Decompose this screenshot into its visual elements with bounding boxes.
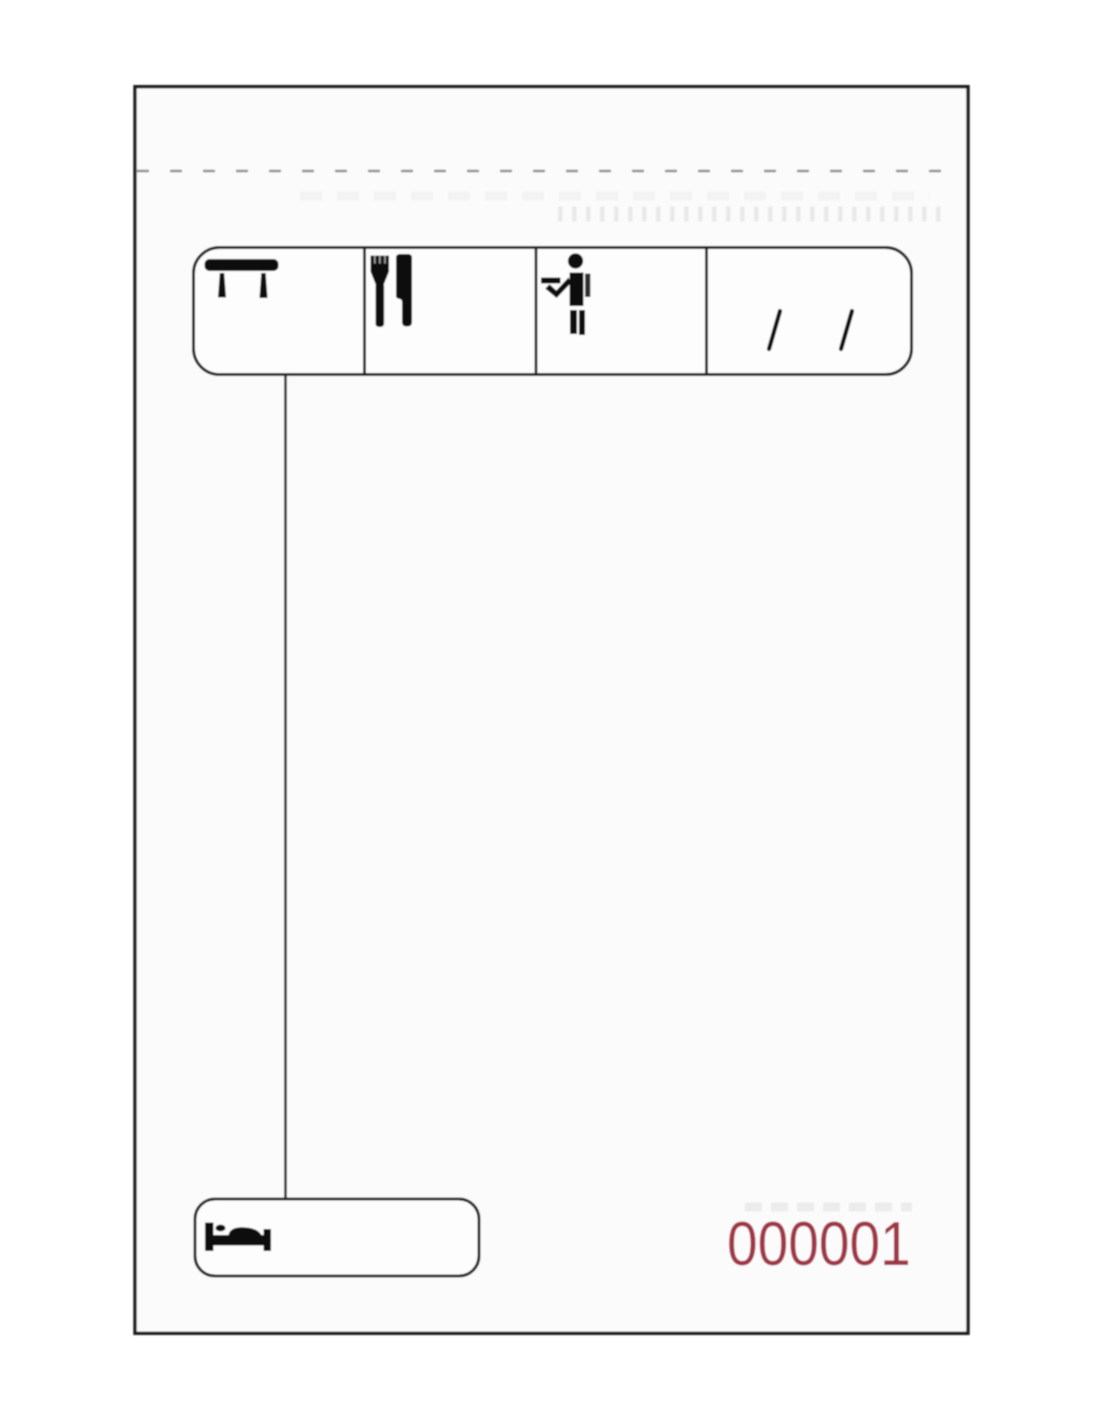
svg-text:000001: 000001 — [727, 1210, 911, 1279]
